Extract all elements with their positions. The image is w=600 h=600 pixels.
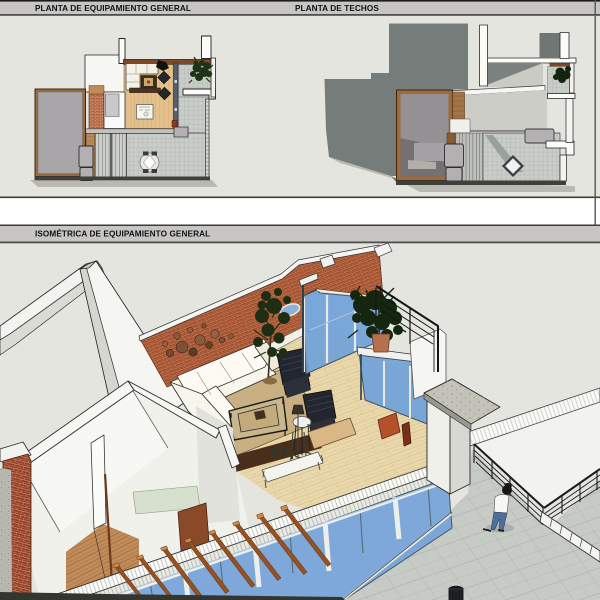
svg-text:PLANTA DE TECHOS: PLANTA DE TECHOS [295, 4, 379, 13]
svg-text:ISOMÉTRICA DE EQUIPAMIENTO GEN: ISOMÉTRICA DE EQUIPAMIENTO GENERAL [35, 229, 210, 239]
svg-text:PLANTA DE EQUIPAMIENTO GENERAL: PLANTA DE EQUIPAMIENTO GENERAL [35, 4, 191, 13]
